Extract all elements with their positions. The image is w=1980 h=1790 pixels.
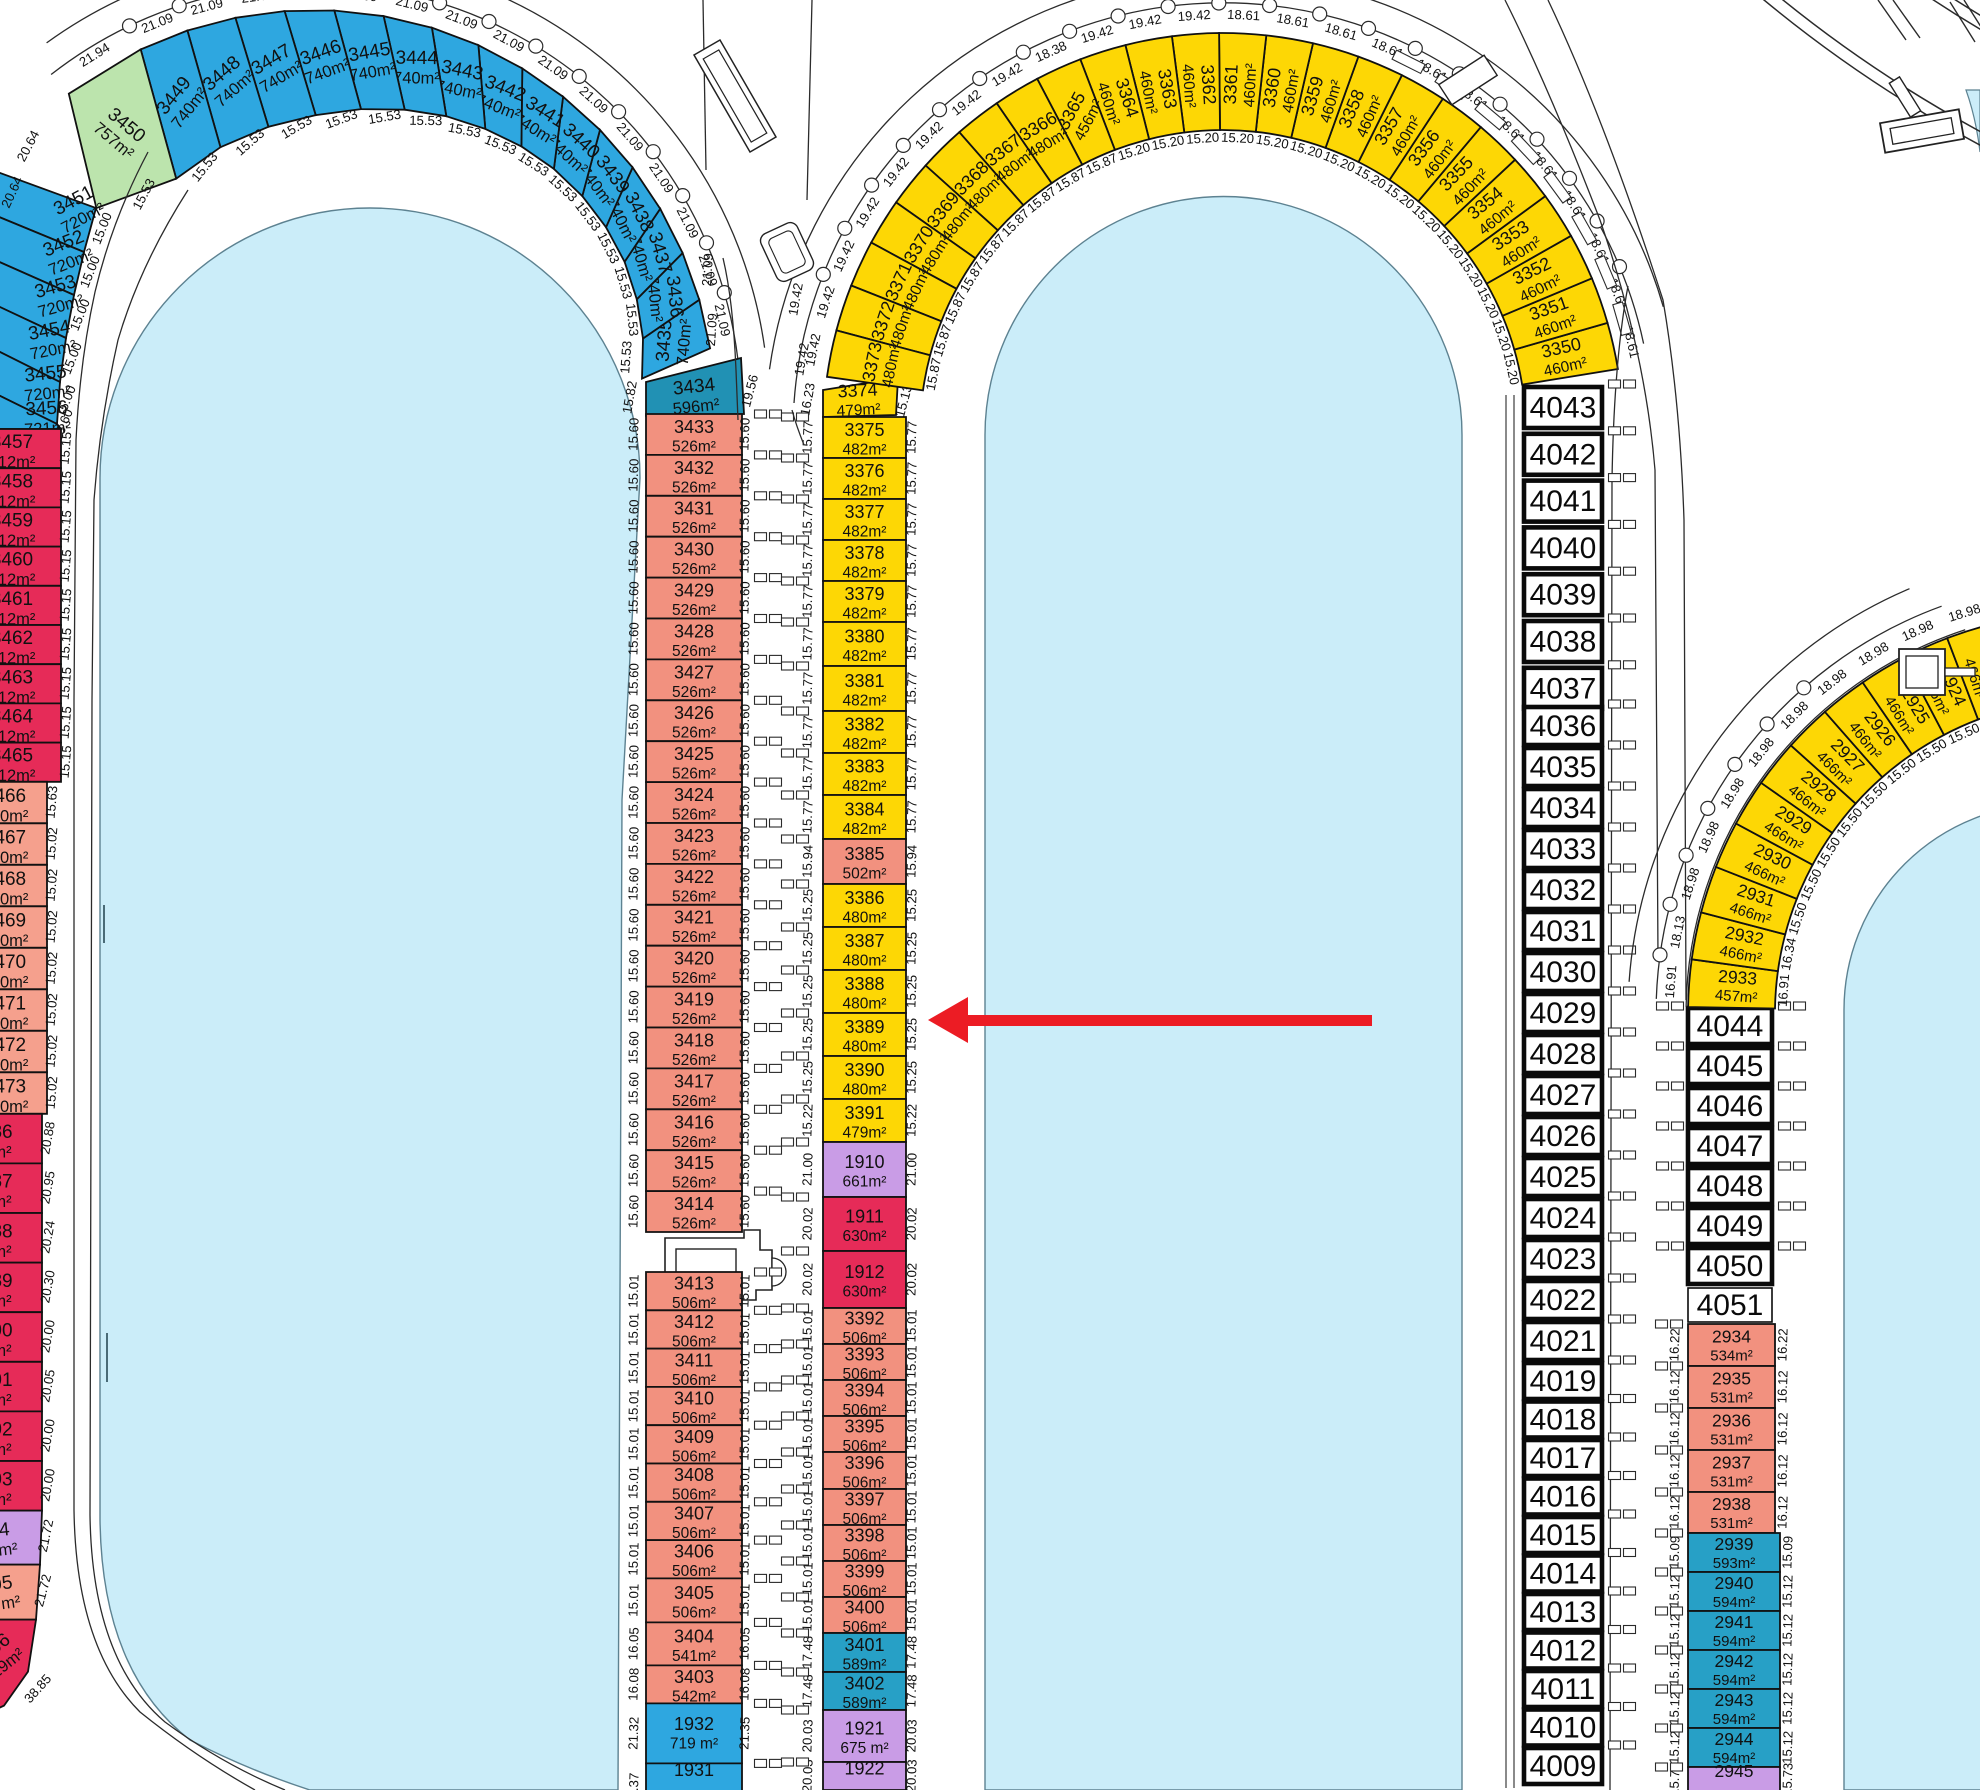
svg-text:m²: m² (0, 1342, 12, 1360)
svg-text:3444: 3444 (395, 48, 438, 70)
svg-text:15.77: 15.77 (799, 800, 815, 834)
svg-text:3462: 3462 (0, 628, 33, 649)
svg-text:3405: 3405 (674, 1583, 714, 1603)
svg-text:16.08: 16.08 (625, 1667, 641, 1701)
svg-text:16.05: 16.05 (736, 1627, 752, 1661)
svg-text:15.60: 15.60 (625, 622, 641, 656)
svg-text:3471: 3471 (0, 994, 26, 1015)
svg-text:15.01: 15.01 (625, 1274, 641, 1308)
svg-text:20.02: 20.02 (903, 1263, 919, 1297)
svg-text:15.60: 15.60 (625, 1154, 641, 1188)
svg-text:15.12: 15.12 (1666, 1614, 1682, 1648)
svg-text:15.01: 15.01 (736, 1542, 752, 1576)
svg-text:15.77: 15.77 (799, 672, 815, 706)
svg-text:4047: 4047 (1697, 1130, 1764, 1163)
svg-text:15.25: 15.25 (799, 889, 815, 923)
svg-text:15.12: 15.12 (1666, 1692, 1682, 1726)
svg-text:15.60: 15.60 (736, 1072, 752, 1106)
svg-text:3394: 3394 (844, 1381, 884, 1401)
svg-text:21.09: 21.09 (703, 313, 720, 347)
svg-text:4042: 4042 (1530, 438, 1597, 471)
svg-text:3407: 3407 (674, 1503, 714, 1523)
svg-text:93: 93 (0, 1469, 13, 1490)
svg-text:15.01: 15.01 (736, 1274, 752, 1308)
svg-text:4025: 4025 (1530, 1161, 1597, 1194)
svg-text:526m²: 526m² (672, 520, 716, 537)
svg-text:15.15: 15.15 (57, 470, 75, 504)
svg-text:4037: 4037 (1530, 672, 1597, 705)
svg-text:3400: 3400 (844, 1598, 884, 1618)
svg-text:19.42: 19.42 (1177, 7, 1211, 24)
svg-text:661m²: 661m² (843, 1174, 887, 1191)
svg-text:89: 89 (0, 1271, 13, 1292)
svg-text:526m²: 526m² (672, 1011, 716, 1028)
svg-text:3466: 3466 (0, 786, 26, 807)
svg-text:4051: 4051 (1697, 1289, 1764, 1322)
svg-text:482m²: 482m² (843, 606, 887, 623)
svg-text:3376: 3376 (844, 461, 884, 481)
svg-text:740m²: 740m² (393, 69, 440, 88)
svg-text:15.60: 15.60 (625, 581, 641, 615)
svg-text:15.77: 15.77 (903, 503, 919, 537)
svg-text:3472: 3472 (0, 1035, 26, 1056)
svg-text:15.77: 15.77 (903, 672, 919, 706)
svg-text:91: 91 (0, 1370, 13, 1391)
svg-text:3404: 3404 (674, 1626, 714, 1646)
svg-text:m²: m² (0, 1144, 12, 1162)
svg-text:3465: 3465 (0, 746, 33, 767)
svg-text:482m²: 482m² (843, 736, 887, 753)
svg-text:15.02: 15.02 (43, 910, 61, 944)
svg-text:15.25: 15.25 (903, 889, 919, 923)
svg-text:15.01: 15.01 (799, 1381, 815, 1415)
svg-text:4050: 4050 (1697, 1250, 1764, 1283)
svg-text:15.60: 15.60 (625, 1031, 641, 1065)
svg-text:2934: 2934 (1712, 1327, 1751, 1347)
svg-text:526m²: 526m² (672, 1134, 716, 1151)
svg-text:15.77: 15.77 (799, 585, 815, 619)
svg-text:3425: 3425 (674, 744, 714, 764)
svg-text:1912: 1912 (844, 1262, 884, 1282)
svg-text:15.60: 15.60 (625, 1113, 641, 1147)
svg-text:4010: 4010 (1530, 1712, 1597, 1745)
svg-text:4036: 4036 (1530, 710, 1597, 743)
svg-text:15.01: 15.01 (799, 1562, 815, 1596)
svg-text:15.60: 15.60 (625, 949, 641, 983)
svg-text:3457: 3457 (0, 432, 33, 453)
svg-text:20.03: 20.03 (903, 1759, 919, 1790)
svg-text:16.12: 16.12 (1774, 1370, 1790, 1404)
svg-text:15.01: 15.01 (625, 1504, 641, 1538)
svg-text:3375: 3375 (844, 420, 884, 440)
svg-text:526m²: 526m² (672, 847, 716, 864)
svg-text:15.25: 15.25 (799, 1018, 815, 1052)
svg-text:15.77: 15.77 (903, 800, 919, 834)
svg-text:1910: 1910 (844, 1152, 884, 1172)
svg-text:4048: 4048 (1697, 1170, 1764, 1203)
svg-text:3402: 3402 (844, 1674, 884, 1694)
svg-text:3383: 3383 (844, 757, 884, 777)
svg-text:4039: 4039 (1530, 579, 1597, 612)
svg-text:4022: 4022 (1530, 1284, 1597, 1317)
svg-text:15.60: 15.60 (736, 1031, 752, 1065)
svg-text:3408: 3408 (674, 1465, 714, 1485)
svg-text:3464: 3464 (0, 707, 34, 728)
svg-text:4034: 4034 (1530, 792, 1597, 825)
svg-text:15.60: 15.60 (736, 867, 752, 901)
svg-text:3396: 3396 (844, 1453, 884, 1473)
svg-text:15.02: 15.02 (43, 951, 61, 985)
svg-text:15.01: 15.01 (799, 1490, 815, 1524)
svg-text:482m²: 482m² (843, 821, 887, 838)
svg-text:2935: 2935 (1712, 1369, 1751, 1389)
svg-text:3385: 3385 (844, 844, 884, 864)
svg-text:15.01: 15.01 (736, 1313, 752, 1347)
svg-text:15.53: 15.53 (617, 340, 634, 374)
svg-text:15.01: 15.01 (903, 1309, 919, 1343)
svg-text:482m²: 482m² (843, 778, 887, 795)
svg-text:3397: 3397 (844, 1490, 884, 1510)
svg-text:4013: 4013 (1530, 1596, 1597, 1629)
svg-text:3432: 3432 (674, 458, 714, 478)
svg-text:15.53: 15.53 (409, 113, 442, 128)
svg-text:15.94: 15.94 (903, 845, 919, 879)
svg-text:15.60: 15.60 (625, 458, 641, 492)
svg-text:4035: 4035 (1530, 751, 1597, 784)
svg-text:17.48: 17.48 (903, 1674, 919, 1708)
svg-text:15.01: 15.01 (736, 1583, 752, 1617)
svg-text:15.60: 15.60 (625, 499, 641, 533)
svg-text:4019: 4019 (1530, 1365, 1597, 1398)
svg-text:630m²: 630m² (843, 1284, 887, 1301)
svg-text:2942: 2942 (1715, 1651, 1754, 1671)
svg-text:15.01: 15.01 (903, 1345, 919, 1379)
svg-text:2941: 2941 (1715, 1612, 1754, 1632)
svg-text:15.77: 15.77 (903, 715, 919, 749)
svg-text:3431: 3431 (674, 499, 714, 519)
svg-text:594m²: 594m² (1713, 1672, 1756, 1689)
svg-text:3460: 3460 (0, 550, 33, 571)
svg-text:15.12: 15.12 (1779, 1653, 1795, 1687)
svg-text:502m²: 502m² (843, 866, 887, 883)
svg-text:4026: 4026 (1530, 1120, 1597, 1153)
svg-text:4029: 4029 (1530, 997, 1597, 1030)
svg-text:2944: 2944 (1715, 1729, 1754, 1749)
svg-text:m²: m² (0, 1193, 12, 1211)
svg-text:20.02: 20.02 (799, 1263, 815, 1297)
svg-text:1931: 1931 (674, 1760, 714, 1780)
svg-text:m²: m² (0, 1243, 12, 1261)
svg-text:15.02: 15.02 (43, 868, 61, 902)
svg-text:m²: m² (0, 1392, 12, 1410)
svg-text:740m²: 740m² (674, 318, 695, 366)
svg-text:15.01: 15.01 (736, 1466, 752, 1500)
svg-text:526m²: 526m² (672, 561, 716, 578)
svg-text:3389: 3389 (844, 1017, 884, 1037)
svg-text:15.15: 15.15 (57, 588, 75, 622)
svg-text:15.01: 15.01 (903, 1598, 919, 1632)
svg-text:15.15: 15.15 (57, 510, 75, 544)
svg-text:15.60: 15.60 (736, 745, 752, 779)
svg-text:3463: 3463 (0, 667, 33, 688)
svg-text:3382: 3382 (844, 715, 884, 735)
svg-text:3409: 3409 (674, 1427, 714, 1447)
svg-text:15.60: 15.60 (736, 1154, 752, 1188)
svg-text:15.60: 15.60 (625, 786, 641, 820)
svg-text:16.12: 16.12 (1666, 1454, 1682, 1488)
svg-text:3420: 3420 (674, 949, 714, 969)
svg-text:15.01: 15.01 (736, 1351, 752, 1385)
svg-text:87: 87 (0, 1172, 13, 1193)
svg-text:15.77: 15.77 (799, 757, 815, 791)
svg-text:4045: 4045 (1697, 1050, 1764, 1083)
svg-text:15.25: 15.25 (799, 1061, 815, 1095)
svg-text:15.60: 15.60 (625, 990, 641, 1024)
svg-text:20.02: 20.02 (903, 1207, 919, 1241)
svg-text:4030: 4030 (1530, 956, 1597, 989)
svg-text:15.60: 15.60 (736, 1113, 752, 1147)
svg-text:526m²: 526m² (672, 929, 716, 946)
svg-text:526m²: 526m² (672, 643, 716, 660)
svg-text:15.09: 15.09 (1779, 1536, 1795, 1570)
svg-text:3403: 3403 (674, 1667, 714, 1687)
svg-text:15.60: 15.60 (736, 908, 752, 942)
svg-text:15.60: 15.60 (736, 417, 752, 451)
svg-text:480m²: 480m² (843, 910, 887, 927)
svg-text:m²: m² (0, 1292, 12, 1310)
svg-text:16.91: 16.91 (1662, 965, 1679, 999)
svg-text:3415: 3415 (674, 1153, 714, 1173)
svg-text:480m²: 480m² (843, 953, 887, 970)
svg-text:4016: 4016 (1530, 1481, 1597, 1514)
svg-text:15.01: 15.01 (903, 1454, 919, 1488)
svg-text:15.01: 15.01 (625, 1542, 641, 1576)
svg-text:2 m²: 2 m² (0, 1540, 19, 1561)
svg-text:15.12: 15.12 (1666, 1653, 1682, 1687)
svg-text:15.77: 15.77 (903, 585, 919, 619)
svg-text:526m²: 526m² (672, 970, 716, 987)
svg-text:15.15: 15.15 (57, 745, 75, 779)
svg-text:15.25: 15.25 (903, 975, 919, 1009)
svg-text:531m²: 531m² (1710, 1432, 1753, 1449)
svg-text:457m²: 457m² (1714, 987, 1758, 1007)
svg-text:20.03: 20.03 (799, 1719, 815, 1753)
svg-text:2940: 2940 (1715, 1573, 1754, 1593)
svg-text:2938: 2938 (1712, 1494, 1751, 1514)
svg-text:15.25: 15.25 (799, 932, 815, 966)
svg-text:15.94: 15.94 (799, 845, 815, 879)
svg-text:15.01: 15.01 (625, 1427, 641, 1461)
svg-text:15.77: 15.77 (799, 715, 815, 749)
svg-text:15.77: 15.77 (799, 421, 815, 455)
svg-text:1922: 1922 (844, 1759, 884, 1779)
svg-text:482m²: 482m² (843, 693, 887, 710)
svg-text:15.22: 15.22 (799, 1104, 815, 1138)
svg-text:15.15: 15.15 (57, 431, 75, 465)
svg-text:4040: 4040 (1530, 532, 1597, 565)
svg-text:15.15: 15.15 (57, 706, 75, 740)
svg-text:21.37: 21.37 (625, 1772, 641, 1790)
svg-text:2936: 2936 (1712, 1411, 1751, 1431)
svg-text:15.60: 15.60 (736, 704, 752, 738)
svg-text:480m²: 480m² (843, 1082, 887, 1099)
svg-text:1932: 1932 (674, 1714, 714, 1734)
svg-text:3473: 3473 (0, 1077, 26, 1098)
svg-text:3421: 3421 (674, 908, 714, 928)
svg-text:482m²: 482m² (843, 483, 887, 500)
svg-text:15.77: 15.77 (903, 757, 919, 791)
svg-text:3428: 3428 (674, 621, 714, 641)
svg-text:594m²: 594m² (1713, 1633, 1756, 1650)
svg-text:15.01: 15.01 (736, 1389, 752, 1423)
svg-text:3387: 3387 (844, 931, 884, 951)
svg-text:15.01: 15.01 (799, 1417, 815, 1451)
svg-text:15.01: 15.01 (625, 1583, 641, 1617)
svg-text:15.01: 15.01 (799, 1526, 815, 1560)
svg-text:630m²: 630m² (843, 1228, 887, 1245)
svg-text:3427: 3427 (674, 662, 714, 682)
svg-text:589m²: 589m² (843, 1657, 887, 1674)
svg-text:3398: 3398 (844, 1526, 884, 1546)
svg-text:15.01: 15.01 (799, 1309, 815, 1343)
svg-text:15.60: 15.60 (736, 1195, 752, 1229)
svg-text:3412: 3412 (674, 1312, 714, 1332)
svg-text:526m²: 526m² (672, 1216, 716, 1233)
svg-text:15.15: 15.15 (57, 549, 75, 583)
svg-text:3413: 3413 (674, 1274, 714, 1294)
svg-text:2933: 2933 (1717, 966, 1757, 989)
svg-text:2937: 2937 (1712, 1453, 1751, 1473)
svg-text:15.77: 15.77 (799, 627, 815, 661)
svg-text:4044: 4044 (1697, 1010, 1764, 1043)
svg-text:15.12: 15.12 (1666, 1731, 1682, 1765)
svg-text:3459: 3459 (0, 511, 33, 532)
svg-text:15.60: 15.60 (736, 786, 752, 820)
svg-text:15.77: 15.77 (903, 544, 919, 578)
svg-text:17.48: 17.48 (799, 1674, 815, 1708)
svg-text:15.60: 15.60 (625, 540, 641, 574)
svg-text:15.60: 15.60 (736, 663, 752, 697)
svg-text:531m²: 531m² (1710, 1474, 1753, 1491)
svg-text:4023: 4023 (1530, 1243, 1597, 1276)
svg-text:3430: 3430 (674, 540, 714, 560)
svg-text:3461: 3461 (0, 589, 33, 610)
svg-text:482m²: 482m² (843, 524, 887, 541)
svg-text:15.77: 15.77 (799, 462, 815, 496)
svg-text:18.61: 18.61 (1227, 7, 1261, 24)
svg-text:3417: 3417 (674, 1071, 714, 1091)
svg-text:3426: 3426 (674, 703, 714, 723)
svg-text:3411: 3411 (675, 1350, 714, 1370)
svg-text:3414: 3414 (674, 1194, 714, 1214)
svg-text:3467: 3467 (0, 828, 26, 849)
svg-text:15.12: 15.12 (1666, 1575, 1682, 1609)
svg-text:3424: 3424 (674, 785, 714, 805)
svg-text:15.60: 15.60 (625, 745, 641, 779)
svg-text:526m²: 526m² (672, 725, 716, 742)
svg-text:4024: 4024 (1530, 1202, 1597, 1235)
svg-text:15.01: 15.01 (625, 1466, 641, 1500)
svg-text:3422: 3422 (674, 867, 714, 887)
svg-text:3469: 3469 (0, 911, 26, 932)
svg-text:3419: 3419 (674, 990, 714, 1010)
svg-text:526m²: 526m² (672, 684, 716, 701)
svg-text:15.60: 15.60 (625, 704, 641, 738)
svg-text:4043: 4043 (1530, 392, 1597, 425)
svg-text:531m²: 531m² (1710, 1515, 1753, 1532)
svg-text:15.01: 15.01 (903, 1381, 919, 1415)
svg-text:15.01: 15.01 (736, 1427, 752, 1461)
svg-text:4038: 4038 (1530, 626, 1597, 659)
svg-text:16.12: 16.12 (1666, 1496, 1682, 1530)
svg-text:15.60: 15.60 (625, 867, 641, 901)
svg-text:16.12: 16.12 (1774, 1412, 1790, 1446)
svg-text:3361: 3361 (1220, 64, 1242, 105)
svg-text:15.60: 15.60 (625, 826, 641, 860)
svg-text:15.77: 15.77 (903, 421, 919, 455)
svg-text:531m²: 531m² (1710, 1390, 1753, 1407)
svg-text:3390: 3390 (844, 1060, 884, 1080)
svg-text:20.03: 20.03 (903, 1719, 919, 1753)
svg-text:15.01: 15.01 (903, 1562, 919, 1596)
svg-text:3458: 3458 (0, 471, 33, 492)
svg-text:15.09: 15.09 (1666, 1536, 1682, 1570)
svg-text:20.02: 20.02 (799, 1207, 815, 1241)
svg-text:3401: 3401 (844, 1635, 884, 1655)
svg-text:86: 86 (0, 1122, 13, 1143)
svg-text:15.02: 15.02 (43, 827, 61, 861)
svg-text:593m²: 593m² (1713, 1555, 1756, 1572)
svg-text:16.22: 16.22 (1666, 1328, 1682, 1362)
svg-text:3433: 3433 (674, 417, 714, 437)
svg-text:15.25: 15.25 (903, 932, 919, 966)
svg-text:15.01: 15.01 (625, 1313, 641, 1347)
svg-text:3386: 3386 (844, 888, 884, 908)
svg-text:15.15: 15.15 (57, 627, 75, 661)
svg-text:15.60: 15.60 (736, 499, 752, 533)
svg-text:3380: 3380 (844, 627, 884, 647)
svg-text:460m²: 460m² (1241, 63, 1260, 108)
svg-text:15.02: 15.02 (43, 993, 61, 1027)
svg-text:3377: 3377 (844, 502, 884, 522)
svg-text:15.01: 15.01 (799, 1345, 815, 1379)
svg-text:2939: 2939 (1715, 1534, 1754, 1554)
svg-text:21.00: 21.00 (903, 1153, 919, 1187)
svg-text:15.77: 15.77 (903, 462, 919, 496)
svg-text:4021: 4021 (1530, 1325, 1597, 1358)
svg-text:16.05: 16.05 (625, 1627, 641, 1661)
svg-text:480m²: 480m² (843, 996, 887, 1013)
svg-text:16.08: 16.08 (736, 1667, 752, 1701)
svg-text:4018: 4018 (1530, 1404, 1597, 1437)
svg-text:4012: 4012 (1530, 1635, 1597, 1668)
svg-text:16.12: 16.12 (1666, 1370, 1682, 1404)
svg-text:4046: 4046 (1697, 1090, 1764, 1123)
svg-text:3391: 3391 (844, 1103, 884, 1123)
svg-text:594m²: 594m² (1713, 1711, 1756, 1728)
svg-text:3384: 3384 (844, 800, 884, 820)
svg-text:15.01: 15.01 (903, 1417, 919, 1451)
svg-text:16.12: 16.12 (1666, 1412, 1682, 1446)
svg-text:3416: 3416 (674, 1112, 714, 1132)
svg-text:15.60: 15.60 (625, 1195, 641, 1229)
svg-text:15.25: 15.25 (799, 975, 815, 1009)
svg-text:4015: 4015 (1530, 1519, 1597, 1552)
svg-text:3418: 3418 (674, 1030, 714, 1050)
svg-text:594m²: 594m² (1713, 1594, 1756, 1611)
svg-text:15.01: 15.01 (799, 1454, 815, 1488)
svg-text:4009: 4009 (1530, 1750, 1597, 1783)
